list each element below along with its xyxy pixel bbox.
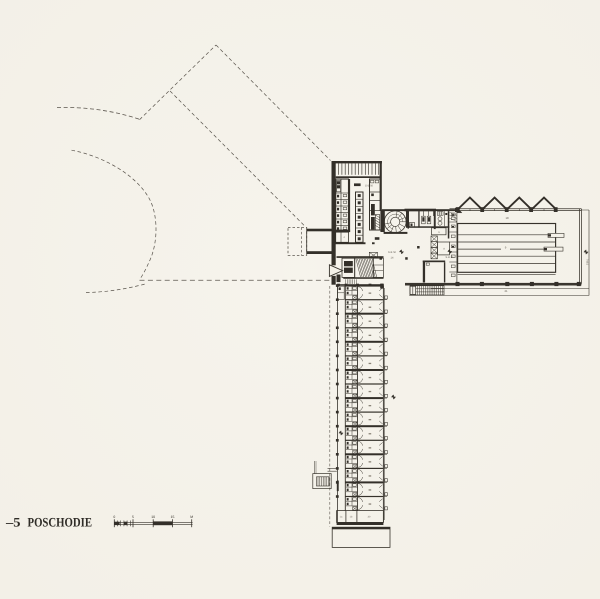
svg-text:15: 15 <box>171 515 175 519</box>
svg-text:1a: 1a <box>340 516 343 519</box>
svg-text:30: 30 <box>368 516 371 519</box>
svg-text:4: 4 <box>343 236 345 239</box>
svg-text:18: 18 <box>505 216 509 220</box>
svg-text:10: 10 <box>151 515 155 519</box>
svg-text:6: 6 <box>438 231 440 234</box>
svg-text:–5: –5 <box>5 515 21 530</box>
svg-text:S-B 50: S-B 50 <box>388 251 396 254</box>
svg-text:8: 8 <box>443 248 445 251</box>
svg-text:14: 14 <box>391 257 394 260</box>
svg-text:1b: 1b <box>350 516 353 519</box>
svg-text:21: 21 <box>504 289 508 293</box>
svg-text:M: M <box>190 515 193 519</box>
svg-text:0: 0 <box>113 515 115 519</box>
svg-text:POSCHODIE: POSCHODIE <box>28 515 93 530</box>
svg-text:748,5: 748,5 <box>586 259 589 266</box>
svg-text:5: 5 <box>132 515 134 519</box>
